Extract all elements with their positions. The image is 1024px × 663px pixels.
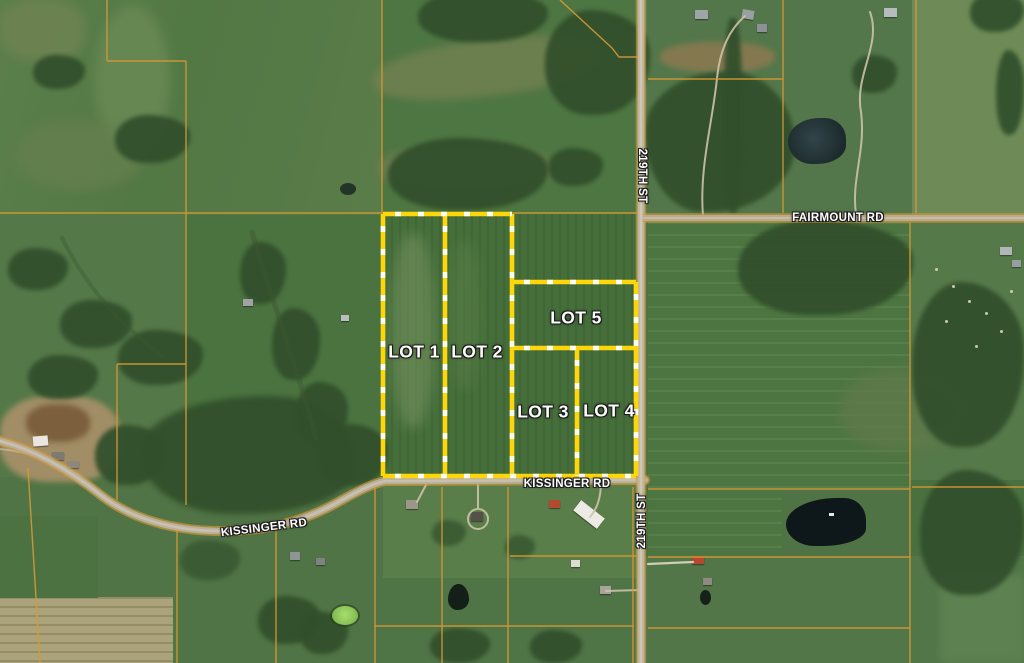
tree-patch — [645, 72, 795, 212]
plowed-field — [0, 597, 173, 663]
red-roof-house — [549, 500, 560, 508]
driveways — [0, 12, 873, 591]
field-patch — [15, 120, 145, 190]
tree-patch — [296, 382, 348, 444]
shed — [571, 560, 580, 567]
tree-patch — [970, 0, 1024, 32]
building — [703, 578, 712, 585]
field-patch — [645, 556, 1024, 663]
pond — [700, 590, 711, 605]
road-label-219th-st-south: 219TH ST — [636, 494, 648, 549]
tree-patch — [432, 520, 466, 546]
pond — [786, 498, 866, 546]
pond — [448, 584, 469, 610]
field-patch — [0, 214, 384, 484]
crop-field — [648, 222, 910, 562]
field-patch — [382, 0, 640, 214]
tree-patch — [430, 628, 490, 663]
pond — [332, 606, 358, 625]
tree-patch — [318, 424, 388, 486]
building — [471, 512, 483, 521]
building — [316, 558, 325, 565]
building — [68, 461, 79, 468]
brush-patch — [369, 26, 604, 110]
tree-patch — [530, 630, 582, 663]
field-patch — [0, 477, 383, 663]
field-patch — [782, 490, 910, 556]
road-label-kissinger-rd-east: KISSINGER RD — [524, 478, 611, 490]
creek-lines — [62, 232, 316, 438]
building — [884, 8, 897, 17]
building — [600, 586, 611, 594]
lot-label-1: LOT 1 — [388, 342, 440, 363]
field-patch — [912, 0, 1024, 218]
field-patch — [187, 215, 383, 480]
hay-bale — [968, 300, 971, 303]
farm-dirt — [26, 404, 90, 442]
tree-patch — [852, 55, 897, 93]
field-patch — [450, 240, 480, 390]
tree-patch — [258, 596, 320, 644]
tree-patch — [545, 10, 650, 115]
building — [52, 452, 64, 460]
lawn-patch — [383, 482, 645, 578]
lot-label-3: LOT 3 — [517, 402, 569, 423]
field-patch — [644, 0, 1024, 222]
building — [406, 500, 418, 509]
hay-bale — [945, 320, 948, 323]
tree-patch — [912, 282, 1024, 447]
road-label-kissinger-rd-west: KISSINGER RD — [220, 517, 307, 539]
tree-patch — [28, 355, 98, 399]
hay-bale — [1010, 290, 1013, 293]
road-label-219th-st-north: 219TH ST — [636, 149, 648, 204]
tree-patch — [140, 396, 355, 514]
farm-dirt — [0, 396, 120, 482]
tree-patch — [118, 330, 203, 385]
lot-label-5: LOT 5 — [550, 308, 602, 329]
satellite-map-image: LOT 1 LOT 2 LOT 3 LOT 4 LOT 5 FAIRMOUNT … — [0, 0, 1024, 663]
tree-patch — [180, 540, 240, 580]
dirt-patch — [660, 42, 775, 72]
field-patch — [940, 575, 1024, 663]
tree-patch — [33, 55, 85, 89]
road-label-fairmount-rd: FAIRMOUNT RD — [792, 212, 884, 224]
field-patch — [391, 233, 435, 428]
hay-bale — [985, 312, 988, 315]
tree-patch — [738, 220, 913, 315]
hay-bale — [952, 285, 955, 288]
tree-patch — [920, 470, 1024, 595]
tree-patch — [388, 138, 548, 210]
tree-patch — [8, 248, 68, 290]
tree-patch — [95, 425, 165, 485]
building — [243, 299, 253, 306]
field-patch — [95, 5, 170, 155]
tree-row — [724, 18, 742, 213]
tree-patch — [300, 612, 348, 654]
field-patch — [0, 0, 85, 60]
brush-patch — [376, 146, 556, 190]
lot-label-4: LOT 4 — [583, 401, 635, 422]
tree-patch — [115, 115, 190, 163]
red-roof-house — [692, 556, 704, 564]
tree-patch — [505, 535, 535, 559]
hay-bale — [975, 345, 978, 348]
tree-patch — [418, 0, 548, 42]
pond — [788, 118, 846, 164]
tree-patch — [548, 148, 603, 186]
building — [741, 9, 754, 20]
building — [695, 10, 708, 19]
field-patch — [0, 0, 383, 214]
tree-patch — [60, 300, 132, 348]
building — [757, 24, 767, 32]
dock — [829, 513, 834, 516]
brush-patch — [840, 370, 970, 450]
parcel-lines — [0, 0, 1024, 663]
tree-patch — [272, 308, 320, 380]
field-patch — [910, 222, 1024, 480]
building — [290, 552, 300, 560]
field-patch — [383, 578, 645, 663]
tree-patch — [240, 242, 286, 304]
barn — [33, 435, 49, 446]
building — [1012, 260, 1021, 267]
white-barn — [573, 500, 605, 529]
shed — [341, 315, 349, 321]
field-patch — [0, 516, 98, 598]
tree-patch — [996, 50, 1024, 135]
hay-bale — [935, 268, 938, 271]
lot-label-2: LOT 2 — [451, 342, 503, 363]
roads-and-boundaries-overlay — [0, 0, 1024, 663]
hay-bale — [1000, 330, 1003, 333]
pond — [340, 183, 356, 195]
building — [1000, 247, 1012, 255]
